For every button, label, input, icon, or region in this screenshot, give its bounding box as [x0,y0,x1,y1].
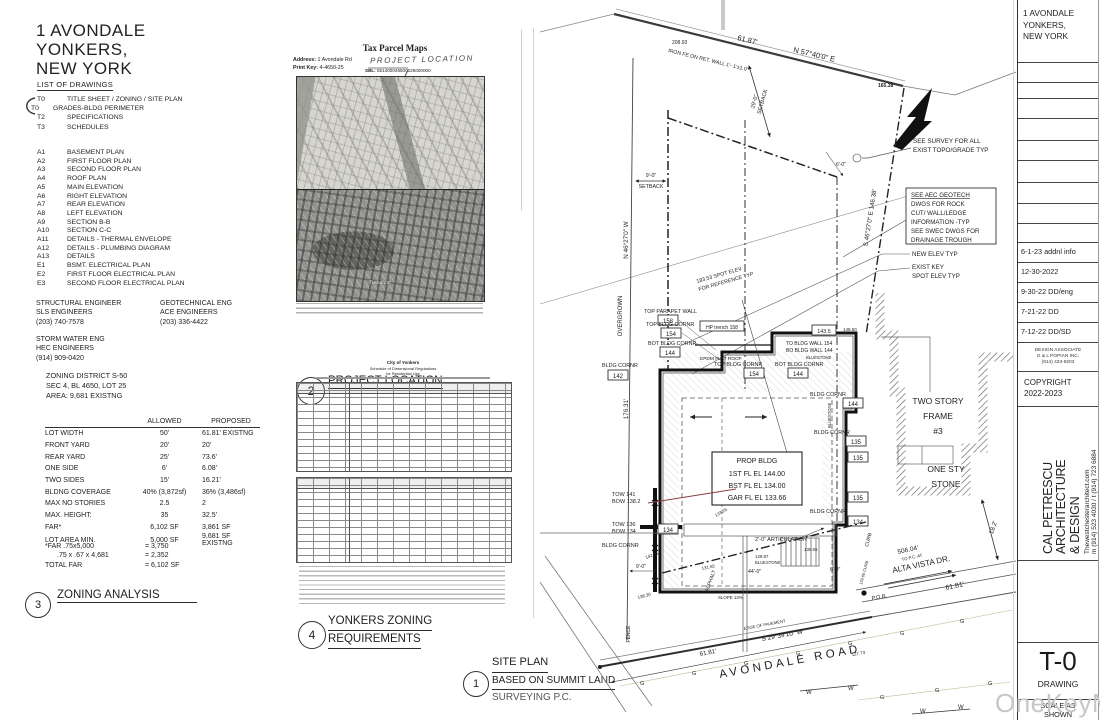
svg-text:61.81': 61.81' [699,648,717,658]
yonkers-table-1 [296,382,512,472]
svg-text:SEE SWEC DWGS FOR: SEE SWEC DWGS FOR [911,228,980,235]
table-row: ONE SIDE6'6.08' [45,463,260,475]
label-top-bldg-c: TOP BLDG CORNR [714,362,762,368]
svg-text:144: 144 [848,402,859,408]
svg-text:135: 135 [851,440,862,446]
list-item: T3SCHEDULES [37,123,182,132]
svg-text:G: G [744,661,748,667]
svg-text:SETBACK: SETBACK [639,184,664,190]
svg-text:PROP BLDG: PROP BLDG [737,458,778,465]
zoning-analysis-table: ALLOWED PROPOSED LOT WIDTH50'61.81' EXIS… [45,418,260,545]
svg-text:EXIST TOPO/GRADE TYP: EXIST TOPO/GRADE TYP [913,147,988,154]
svg-text:DRAINAGE TROUGH: DRAINAGE TROUGH [911,237,972,244]
tax-parcel-maps-title: Tax Parcel Maps [330,43,460,53]
svg-text:EDGE OF PAVEMENT: EDGE OF PAVEMENT [743,618,786,631]
svg-text:G: G [640,681,644,687]
spot-elev: 165.38 [878,83,894,89]
corner-labels-right: BLDG CORNR 144 BLDG CORNR 135 135 135 BL… [810,392,868,526]
svg-text:TOP PARAPET WALL: TOP PARAPET WALL [644,309,697,315]
table-row: MAX NO STORIES2.52 [45,498,260,510]
svg-text:129.66 CURB: 129.66 CURB [858,560,869,585]
yonkers-table-subtitle2: for Residential Use [296,371,510,376]
spot-elev: 148.50 [843,327,857,332]
svg-text:FRAME: FRAME [923,411,953,421]
west-property-line [627,58,633,640]
drawing-list-t: T0TITLE SHEET / ZONING / SITE PLAN T0GRA… [37,95,182,132]
svg-text:STONE: STONE [931,479,960,489]
spot-elev: 208.93 [672,40,688,46]
svg-text:G: G [900,631,904,637]
spot-elev: 133.25 [714,507,729,518]
tax-map-image [297,77,484,189]
yonkers-table-2 [296,477,512,563]
svg-text:G: G [960,619,964,625]
drawing-list-a: A1BASEMENT PLAN A2FIRST FLOOR PLAN A3SEC… [37,149,185,288]
note-see-survey: SEE SURVEY FOR ALL [913,138,981,145]
svg-text:154: 154 [666,332,677,338]
label-bot-bldg-c: BOT BLDG CORNR [775,362,824,368]
svg-text:CUT/ WALL/LEDGE: CUT/ WALL/LEDGE [911,210,966,217]
svg-text:154: 154 [749,372,760,378]
alta-vista-road: CURB 129.66 CURB 506.04' TO P.C. AT ALTA… [856,532,1016,602]
dim-6ft-top: 6'-0" [836,162,846,168]
page-title: 1 AVONDALE YONKERS, NEW YORK [36,21,146,78]
svg-text:144: 144 [793,372,804,378]
list-item: T0GRADES-BLDG PERIMETER [37,104,182,113]
svg-text:BOW 138.2: BOW 138.2 [612,499,640,505]
parcel-map-frame: Tuckahoe [296,76,485,302]
svg-text:FENCE: FENCE [626,625,632,643]
list-item: T0TITLE SHEET / ZONING / SITE PLAN [37,95,182,104]
yonkers-amended-line [316,377,490,379]
dim-6ft-bottom: 6'-0" [830,567,840,573]
design-associate-block: DESIGN ASSOCIATE G & L POPIAN INC. (914)… [1018,348,1098,366]
avondale-road: FENCE EDGE OF PAVEMENT 61.81' S 29°39'10… [540,556,1016,712]
svg-text:DWGS FOR ROCK: DWGS FOR ROCK [911,201,965,208]
dim-18-2: 18.2' [988,520,999,535]
label-east-bearing: S 46°27'0" E 146.38' [862,189,879,247]
drawing-sheet: 1 AVONDALE YONKERS, NEW YORK LIST OF DRA… [0,0,1100,720]
svg-text:BST FL EL 134.00: BST FL EL 134.00 [729,483,786,490]
watermark: OneKeyMLS [995,688,1100,719]
title-line: NEW YORK [36,59,146,78]
table-row: TWO SIDES15'16.21' [45,475,260,487]
svg-text:W: W [806,690,812,696]
label-bldg-cornr-bl: BLDG CORNR [602,543,639,549]
spot-elev: 129.87 [755,554,769,559]
label-slope: SLOPE 13% [718,595,743,600]
note-new-elev: NEW ELEV TYP [912,251,958,258]
svg-text:W: W [920,709,926,715]
svg-text:AVONDALE ROAD: AVONDALE ROAD [718,643,861,681]
svg-text:135: 135 [853,456,864,462]
label-iron-fence: IRON FE ON RET. WALL 1'- 1'±1.0' [668,48,749,73]
yonkers-table-title: City of Yonkers [296,360,510,365]
svg-text:143.5: 143.5 [817,329,831,335]
sheet-number: T-0 [1018,646,1098,677]
svg-text:TWO STORY: TWO STORY [912,396,963,406]
svg-text:BLDG CORNR: BLDG CORNR [810,509,846,515]
label-tow136: TOW 136 [612,522,635,528]
callout-4-circle: 4 [298,621,326,649]
table-row: BLDNG COVERAGE40% (3,872sf)36% (3,486sf) [45,486,260,498]
table-row: LOT WIDTH50'61.81' EXISTNG [45,428,260,440]
spot-elev: 138.30 [637,592,652,600]
zoning-analysis-label: ZONING ANALYSIS [57,589,197,603]
svg-text:BOT BLDG CORNR: BOT BLDG CORNR [648,341,697,347]
svg-text:1ST FL EL 144.00: 1ST FL EL 144.00 [729,471,785,478]
neighbor-building: TWO STORY FRAME #3 ONE STY STONE [880,293,1013,491]
label-to-bldg-wall: TO BLDG WALL 154 [786,341,832,347]
structural-engineer-block: STRUCTURAL ENGINEER SLS ENGINEERS (203) … [36,299,121,327]
revision-row: 7-12-22 DD/SD [1021,327,1071,336]
svg-text:G: G [988,681,992,687]
svg-text:SEE AEC GEOTECH: SEE AEC GEOTECH [911,192,970,199]
svg-text:W: W [958,705,964,711]
table-row: FRONT YARD20'20' [45,440,260,452]
svg-text:BOW 134: BOW 134 [612,529,636,535]
map-town-label: Tuckahoe [369,280,391,286]
label-overgrown: OVERGROWN [618,296,624,337]
titleblock-project: 1 AVONDALE YONKERS, NEW YORK [1023,8,1074,43]
revision-row: 12-30-2022 [1021,267,1058,276]
dim-44: 44'-0" [748,569,761,575]
yonkers-notes [299,566,505,606]
svg-text:#3: #3 [933,426,943,436]
title-line: YONKERS, [36,40,146,59]
geotechnical-engineer-block: GEOTECHNICAL ENG ACE ENGINEERS (203) 336… [160,299,232,327]
svg-text:GAR FL EL 133.66: GAR FL EL 133.66 [728,495,787,502]
site-plan-drawing: 61.87' N 57°40'0" E IRON FE ON RET. WALL… [540,0,1018,720]
callout-1-circle: 1 [463,671,489,697]
contour-line [540,196,908,304]
svg-text:G: G [692,671,696,677]
spot-elev: 142.95 [645,550,660,559]
sheet-edge-line [533,28,534,618]
architect-block: CAL PETRESCU ARCHITECTURE & DESIGN Thewe… [1018,406,1098,560]
svg-text:TOP BLDG CORNR: TOP BLDG CORNR [646,322,694,328]
svg-text:BLUESTONE: BLUESTONE [755,560,780,565]
label-setback-9: 9'-0" [646,173,657,179]
storm-water-engineer-block: STORM WATER ENG HEC ENGINEERS (914) 909-… [36,335,105,363]
title-block: 1 AVONDALE YONKERS, NEW YORK 6-1-23 addn… [1017,0,1099,720]
svg-text:SPOT ELEV TYP: SPOT ELEV TYP [912,273,960,280]
svg-text:61.81': 61.81' [945,581,965,592]
front-setback-line [668,118,837,177]
label-bluestone-v: BLUESTONE [827,403,832,428]
svg-text:INFORMATION -TYP: INFORMATION -TYP [911,219,970,226]
yonkers-zoning-label: YONKERS ZONING REQUIREMENTS [328,613,432,649]
svg-text:SETBACK: SETBACK [757,88,770,115]
prop-bldg-note: PROP BLDG 1ST FL EL 144.00 BST FL EL 134… [712,452,802,505]
label-west-length: 176.31' [623,399,630,419]
table-row: MAX. HEIGHT:3532.5' [45,510,260,522]
north-boundary [540,0,1016,95]
svg-text:BLDG CORNR: BLDG CORNR [810,392,846,398]
label-hp-trench: HP trench 158 [706,325,738,331]
table-header: ALLOWED PROPOSED [45,418,260,428]
spot-elev: 130.55 [804,547,818,552]
dim-9ft: 9'-0" [636,564,646,570]
svg-text:G: G [848,641,852,647]
spot-elev: 131.65 [701,563,716,571]
table-row: REAR YARD25'73.6' [45,451,260,463]
svg-text:142: 142 [613,374,624,380]
sheet-edge-line [521,30,522,210]
far-calculation: *FAR .75x5,000= 3,750 .75 x .67 x 4,681=… [45,542,179,570]
label-bluestone: BLUESTONE [806,355,831,360]
sheet-number-block: T-0 DRAWING [1018,646,1098,689]
title-line: 1 AVONDALE [36,21,146,40]
map-fine-print [296,303,483,316]
revision-row: 7-21-22 DD [1021,307,1059,316]
hand-brace-mark [22,97,36,115]
svg-text:135: 135 [853,496,864,502]
svg-text:G: G [880,695,884,701]
svg-text:P.O.B.: P.O.B. [871,593,888,602]
svg-text:BLDG CORNR: BLDG CORNR [602,363,638,369]
zoning-district-block: ZONING DISTRICT S-50 SEC 4, BL 4650, LOT… [46,371,127,401]
svg-text:ONE STY: ONE STY [927,464,965,474]
label-tow141: TOW 141 [612,492,635,498]
list-of-drawings-heading: LIST OF DRAWINGS [37,80,113,91]
revision-row: 6-1-23 addnl info [1021,247,1076,256]
svg-text:CURB: CURB [864,532,874,548]
list-item: T2SPECIFICATIONS [37,113,182,122]
copyright-block: COPYRIGHT 2022-2023 [1024,378,1072,399]
callout-3-circle: 3 [25,592,51,618]
table-row: FAR*6,102 SF3,861 SF [45,522,260,534]
svg-text:BLDG CORNR: BLDG CORNR [814,430,850,436]
svg-text:G: G [796,651,800,657]
label-bo-bldg-wall: BO BLDG WALL 144 [786,348,833,354]
svg-text:W: W [848,686,854,692]
note-exist-key: EXIST KEY [912,264,944,271]
revision-row: 9-30-22 DD/eng [1021,287,1073,296]
label-west-bearing: N 46°27'0" W [622,221,630,259]
svg-text:G: G [935,688,939,694]
svg-text:144: 144 [665,351,676,357]
